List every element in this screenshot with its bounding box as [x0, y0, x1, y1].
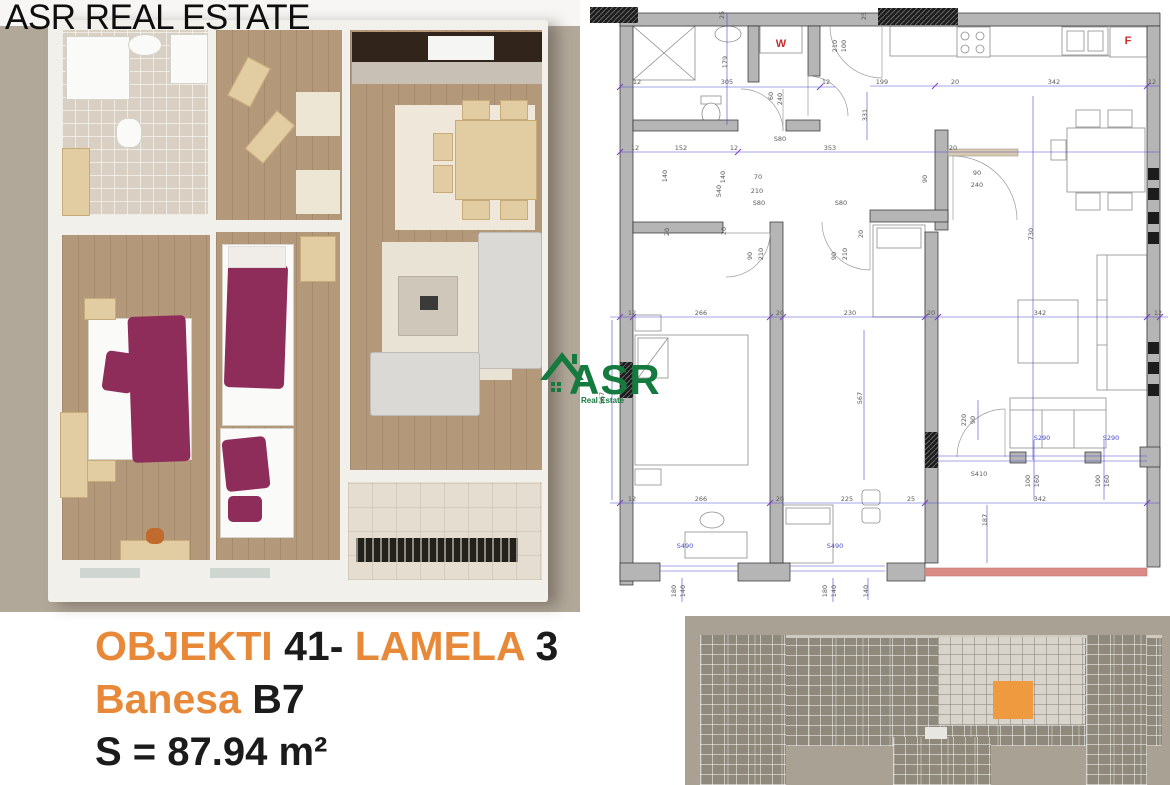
- single-bed-2-pillow: [228, 496, 262, 522]
- dimension-label: 90: [746, 252, 754, 260]
- nightstand: [84, 298, 116, 320]
- bed2-plan: [873, 225, 925, 317]
- dimension-label: S490: [677, 542, 694, 550]
- technical-floor-plan: 123051225179602401215212353140140S807021…: [590, 0, 1170, 612]
- dimension-label: 353: [824, 144, 836, 152]
- dimension-label: 230: [844, 309, 856, 317]
- sofa-right: [478, 232, 542, 369]
- dimension-label: S80: [835, 199, 847, 207]
- dimension-label: 12: [822, 78, 830, 86]
- dimension-label: 100: [840, 40, 848, 52]
- dining-chair: [433, 133, 453, 161]
- appliance-label: W: [776, 38, 787, 50]
- stair-core: [925, 727, 947, 739]
- dining-chair: [433, 165, 453, 193]
- nightstand: [84, 460, 116, 482]
- lamela-label: LAMELA: [355, 623, 524, 669]
- dimension-label: 70: [754, 173, 762, 181]
- dimension-label: 187: [981, 514, 989, 526]
- dimension-label: 20: [857, 230, 865, 238]
- dimension-label: 180: [821, 585, 829, 597]
- agency-logo: ASR Real Estate: [543, 356, 673, 405]
- lamela-number: 3: [535, 623, 558, 669]
- nightstand-plan: [635, 315, 661, 331]
- kitchen-strip: [352, 62, 542, 84]
- dimension-label: 90: [921, 175, 929, 183]
- dimension-label: 567: [856, 392, 864, 404]
- dimension-label: 20: [720, 227, 728, 235]
- dimension-label: 140: [679, 585, 687, 597]
- dimension-label: S490: [827, 542, 844, 550]
- dimension-label: 20: [663, 228, 671, 236]
- building-center-block: [893, 737, 991, 785]
- dimension-label: 210: [841, 248, 849, 260]
- dimension-label: 20: [951, 78, 959, 86]
- dimension-label: S410: [971, 470, 988, 478]
- dimension-label: 266: [695, 495, 707, 503]
- dimension-label: 152: [675, 144, 687, 152]
- dimension-label: 25: [907, 495, 915, 503]
- dimension-label: 20: [776, 309, 784, 317]
- wardrobe: [60, 412, 88, 498]
- objekti-number: 41-: [284, 623, 343, 669]
- armchair-plan: [862, 508, 880, 523]
- desk-chair-plan: [700, 512, 724, 528]
- coffee-table-plan: [1018, 300, 1078, 363]
- door-sill: [948, 149, 1018, 156]
- nightstand-plan: [635, 469, 661, 485]
- shower: [66, 36, 130, 100]
- dining-chair: [500, 100, 528, 120]
- dimension-label: 100: [1094, 475, 1102, 487]
- dimension-label: 199: [876, 78, 888, 86]
- open-door-leaf-1: [296, 92, 340, 136]
- area-text: S = 87.94 m²: [95, 726, 558, 779]
- terrace-floor: [348, 482, 542, 580]
- dimension-label: 140: [661, 170, 669, 182]
- sink-plan: [715, 26, 741, 42]
- caption-line-1: OBJEKTI 41- LAMELA 3: [95, 620, 558, 673]
- washing-machine: [170, 34, 208, 84]
- dining-chair: [462, 100, 490, 120]
- dimension-label: 140: [719, 171, 727, 183]
- bedroom2-dresser: [300, 236, 336, 282]
- agency-watermark-text: ASR REAL ESTATE: [5, 0, 310, 38]
- dining-chair: [462, 200, 490, 220]
- sofa-bottom: [370, 352, 480, 416]
- window: [80, 568, 140, 578]
- dimension-label: 12: [628, 309, 636, 317]
- sofa2-plan: [1010, 398, 1106, 448]
- dimension-label: 12: [1154, 309, 1162, 317]
- dimension-label: 140: [862, 585, 870, 597]
- bottom-wall: [50, 560, 346, 600]
- terrace-edge-red: [925, 568, 1147, 576]
- kitchen-island: [428, 36, 494, 60]
- single-bed-1-pillow: [228, 246, 286, 268]
- dimension-label: 220: [960, 414, 968, 426]
- dimension-label: 266: [695, 309, 707, 317]
- dimension-label: S80: [774, 135, 786, 143]
- unit-caption: OBJEKTI 41- LAMELA 3 Banesa B7 S = 87.94…: [95, 620, 558, 779]
- desk-plan: [685, 532, 747, 558]
- hatched-wall: [925, 432, 938, 468]
- chair-plan: [1051, 140, 1066, 160]
- window: [210, 568, 270, 578]
- building-left-wing: [700, 635, 786, 785]
- dimension-label: 20: [949, 144, 957, 152]
- dining-table-plan: [1067, 128, 1145, 192]
- dimension-label: 730: [1027, 228, 1035, 240]
- dimension-label: 12: [628, 495, 636, 503]
- dimension-label: S80: [753, 199, 765, 207]
- bathroom-cabinet: [62, 148, 90, 216]
- dimension-label: 210: [757, 248, 765, 260]
- dining-table: [455, 120, 537, 200]
- dimension-label: 25: [860, 12, 868, 20]
- chair-plan: [1108, 110, 1132, 127]
- chair-plan: [1076, 193, 1100, 210]
- bed3-plan: [783, 505, 833, 563]
- hatched-wall: [878, 8, 958, 25]
- coffee-table-decor: [420, 296, 438, 310]
- terrace-grate: [356, 538, 518, 562]
- dining-chair: [500, 200, 528, 220]
- dimension-label: 160: [1103, 475, 1111, 487]
- caption-line-2: Banesa B7: [95, 673, 558, 726]
- render-3d-floorplan: [0, 0, 580, 612]
- unit-number: B7: [252, 676, 304, 722]
- dimension-label: 180: [670, 585, 678, 597]
- dimension-label: 12: [633, 78, 641, 86]
- bed-pillow: [101, 350, 136, 394]
- plant-pot: [146, 528, 164, 544]
- dimension-label: 100: [1024, 475, 1032, 487]
- single-bed-1-blanket: [224, 263, 288, 389]
- dimension-label: 225: [841, 495, 853, 503]
- dimension-label: 25: [718, 11, 726, 19]
- dimension-label: 60: [767, 92, 775, 100]
- dimension-label: 342: [1034, 495, 1046, 503]
- dimension-label: 540: [715, 185, 723, 197]
- building-overview-plan: [685, 616, 1170, 785]
- sofa-plan: [1097, 255, 1147, 390]
- real-estate-listing-image: ASR REAL ESTATE: [0, 0, 1170, 785]
- dimension-label: 342: [1048, 78, 1060, 86]
- dimension-label: 12: [631, 144, 639, 152]
- single-bed-2-blanket: [221, 436, 270, 492]
- dimension-label: 331: [861, 109, 869, 121]
- stove-plan: [957, 27, 990, 57]
- dimension-label: S290: [1103, 434, 1120, 442]
- logo-title: ASR: [569, 356, 673, 404]
- dimension-label: S290: [1034, 434, 1051, 442]
- dimension-label: 90: [973, 169, 981, 177]
- hatched-wall: [590, 7, 638, 23]
- dimension-label: 90: [969, 416, 977, 424]
- dimension-label: 210: [751, 187, 763, 195]
- highlighted-unit: [993, 681, 1033, 719]
- building-right-wing: [1086, 635, 1147, 785]
- appliance-label: F: [1125, 35, 1132, 47]
- dimension-label: 179: [721, 56, 729, 68]
- chair-plan: [1076, 110, 1100, 127]
- dimension-label: 20: [927, 309, 935, 317]
- dimension-label: 305: [721, 78, 733, 86]
- double-bed-blanket: [127, 315, 190, 463]
- terrace-ledge: [348, 470, 542, 482]
- dimension-label: 90: [830, 252, 838, 260]
- dimension-label: 20: [776, 495, 784, 503]
- toilet: [116, 118, 142, 148]
- dimension-label: 12: [730, 144, 738, 152]
- dimension-label: 240: [971, 181, 983, 189]
- open-door-leaf-2: [296, 170, 340, 214]
- chair-plan: [1108, 193, 1132, 210]
- dimension-label: 140: [830, 585, 838, 597]
- objekti-label: OBJEKTI: [95, 623, 273, 669]
- dimension-label: 240: [776, 93, 784, 105]
- dimension-label: 160: [1033, 475, 1041, 487]
- dimension-label: 210: [831, 40, 839, 52]
- dimension-label: 342: [1034, 309, 1046, 317]
- banesa-label: Banesa: [95, 676, 241, 722]
- dimension-label: 12: [1148, 78, 1156, 86]
